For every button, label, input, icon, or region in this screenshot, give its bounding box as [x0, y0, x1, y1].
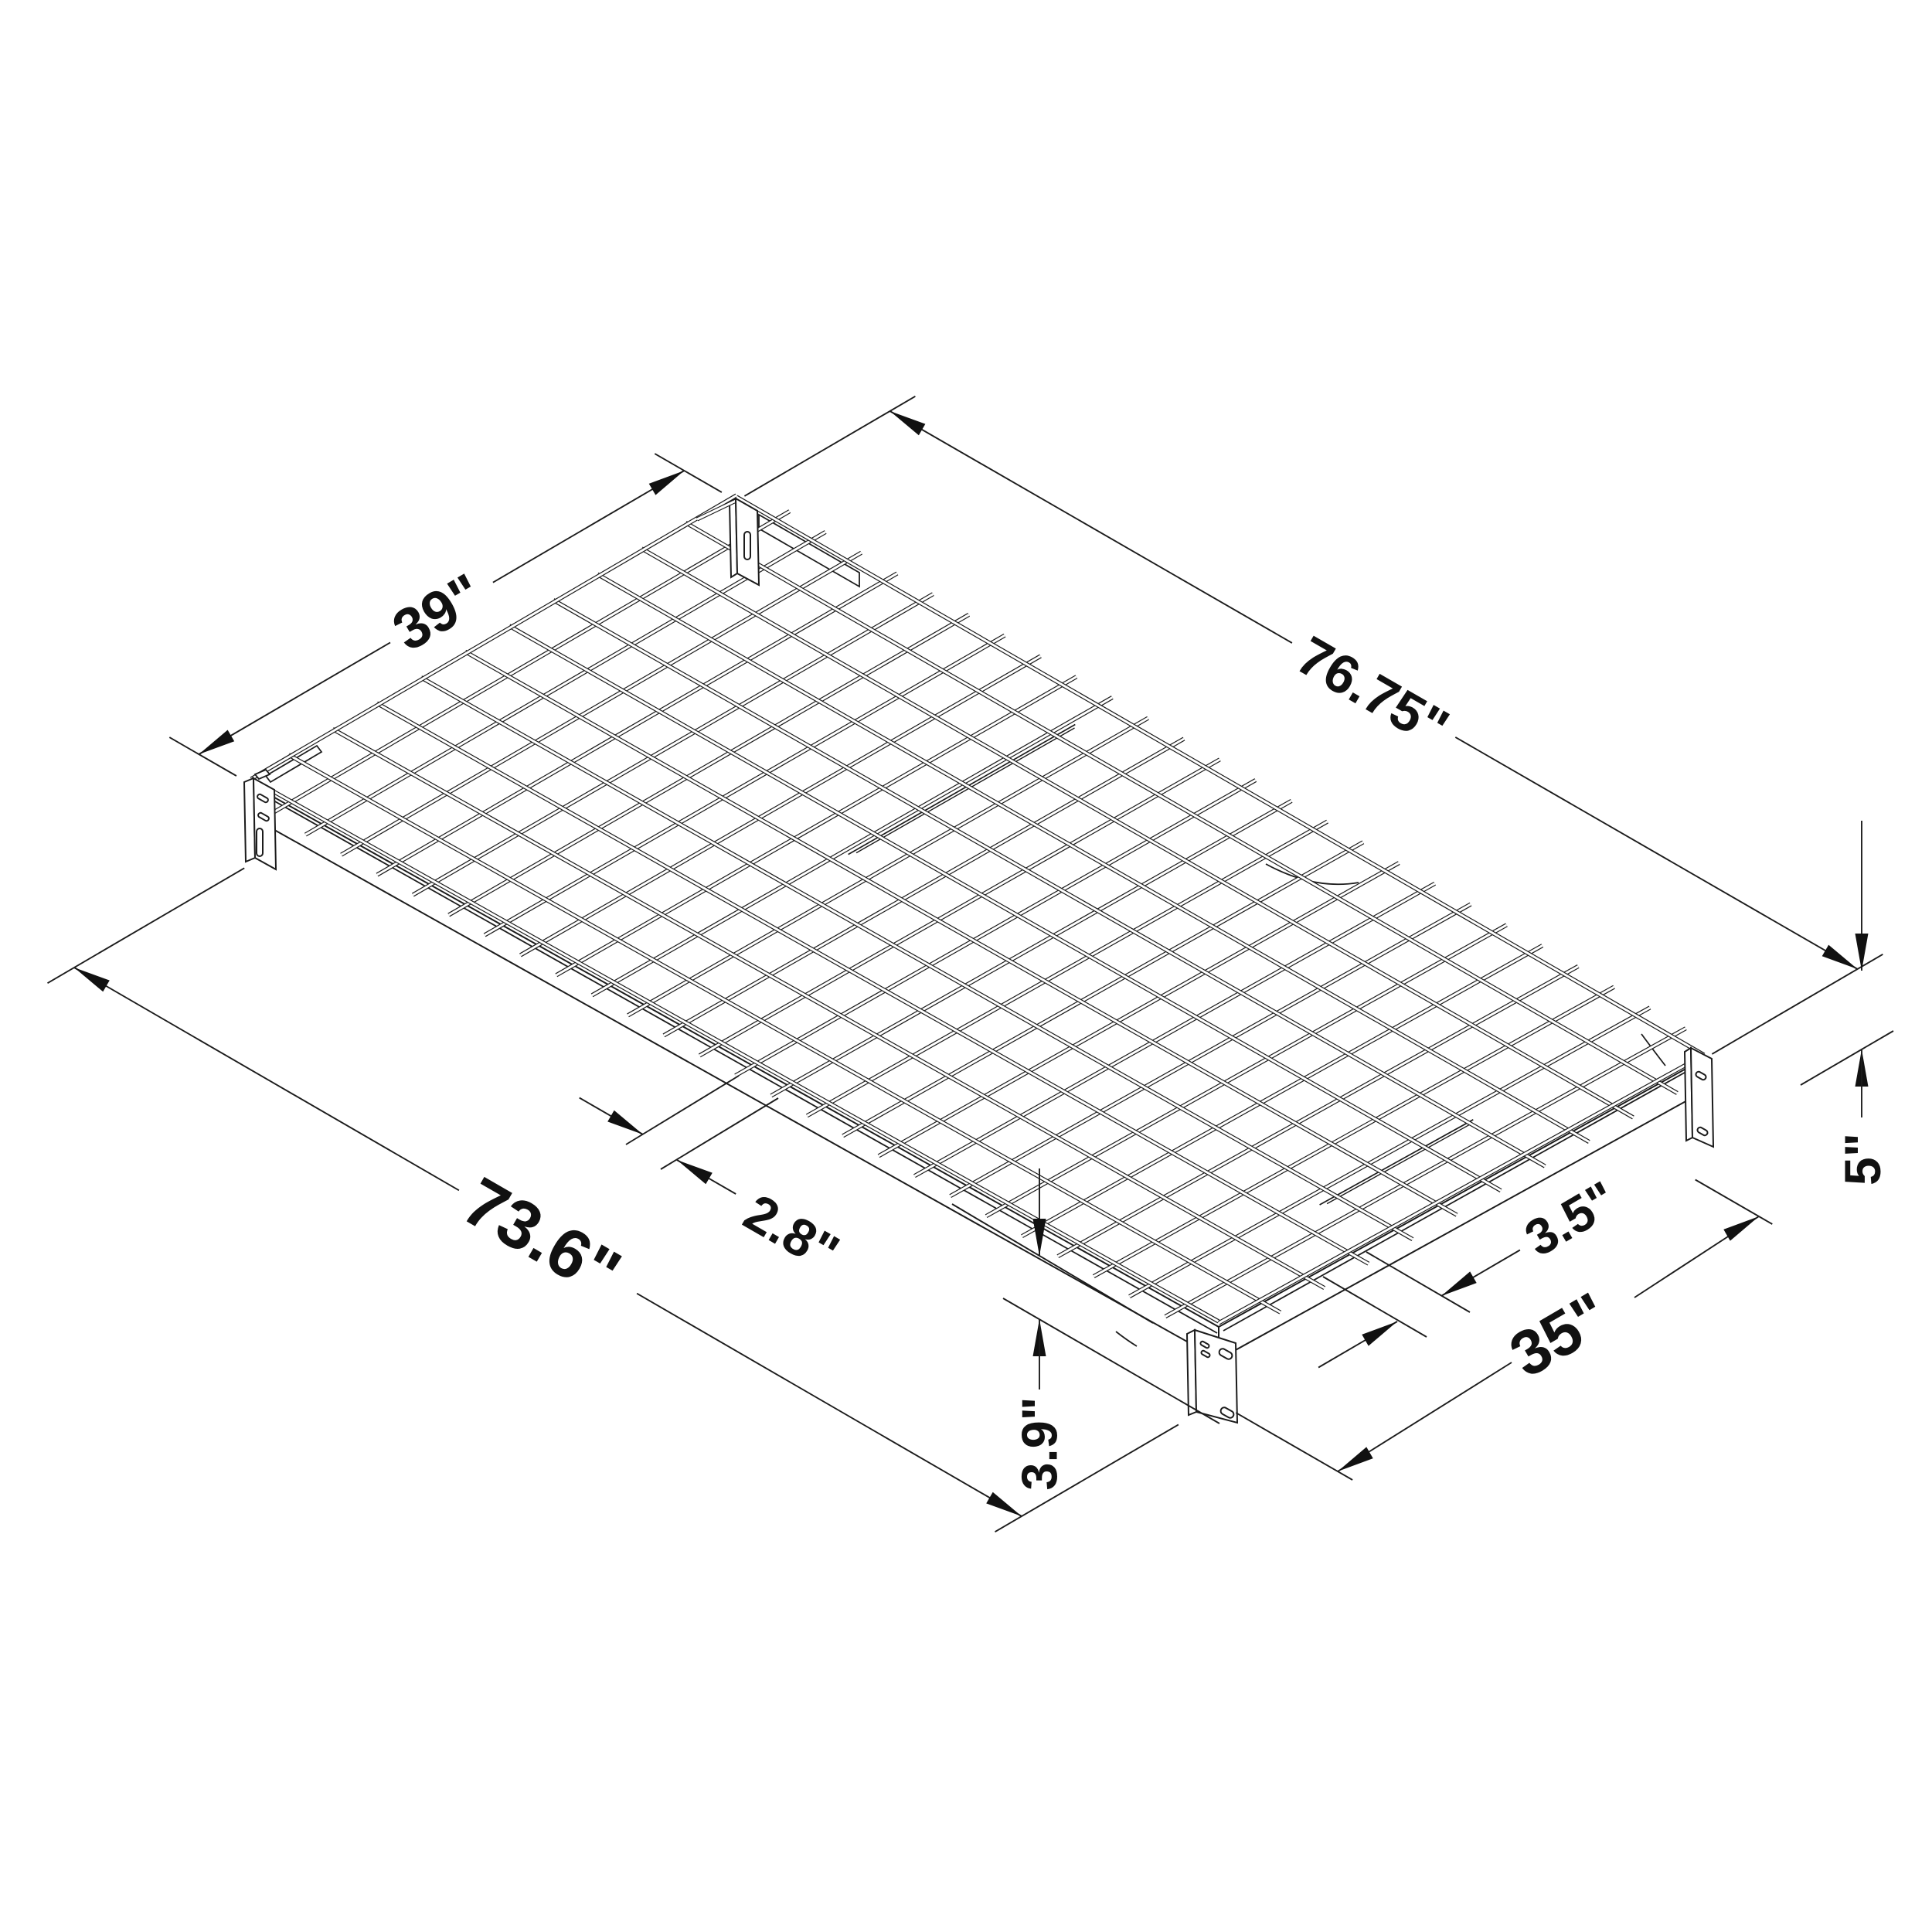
- svg-text:3.9": 3.9": [1011, 1396, 1067, 1490]
- svg-text:5": 5": [1834, 1133, 1891, 1185]
